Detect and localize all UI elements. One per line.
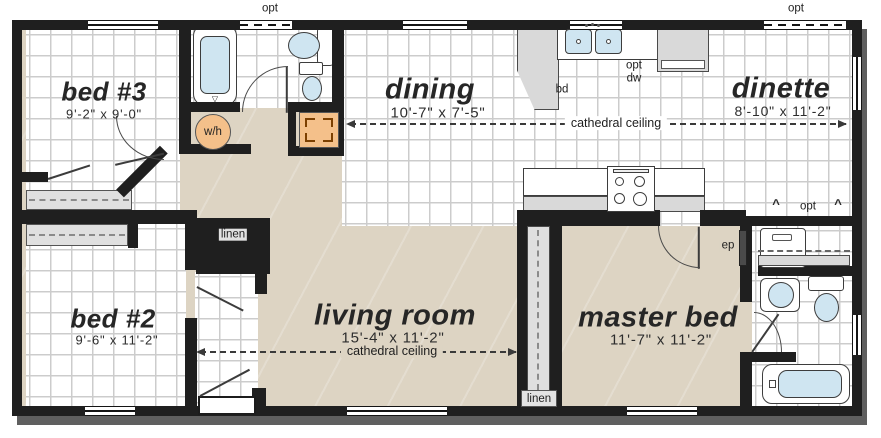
bathtub-main-basin xyxy=(200,36,230,94)
room-name-dinette: dinette xyxy=(732,73,831,106)
arrow-left-top xyxy=(346,120,355,128)
closet-bed2 xyxy=(26,224,128,246)
wall-bed3-left-stub xyxy=(22,172,48,182)
entry-porch xyxy=(198,396,256,415)
floor-plan: opt opt xyxy=(0,0,881,438)
bathtub-master-faucet xyxy=(769,380,776,388)
linen-closet-tall-label: linen xyxy=(521,390,557,407)
room-name-bed3: bed #3 xyxy=(61,77,146,108)
opt-cabinet-caret-right: ^ xyxy=(834,197,842,212)
room-dims-master: 11'-7" x 11'-2" xyxy=(610,332,712,349)
window-optional-dinette xyxy=(764,20,846,30)
washer-counter-dash xyxy=(758,250,850,252)
water-heater: w/h xyxy=(195,114,231,150)
toilet-master-tank xyxy=(808,276,844,291)
washer-detail xyxy=(772,234,792,241)
toilet-main-bowl xyxy=(302,76,322,101)
wall-bed2-foyer-lower xyxy=(185,318,197,406)
furnace-mark-tl xyxy=(305,118,315,127)
linen-closet-frame xyxy=(196,218,270,274)
opt-cabinet-label: opt xyxy=(800,201,816,214)
wall-tub-stub xyxy=(752,352,796,362)
wall-living-linen-left xyxy=(517,226,527,406)
wall-master-bath-lower xyxy=(740,352,752,406)
linen-closet-tall-rod xyxy=(537,230,539,390)
faucet-dot-2 xyxy=(591,23,594,26)
range-burner-4 xyxy=(633,192,647,206)
range-burner-3 xyxy=(614,193,625,204)
wall-linen-master xyxy=(550,226,562,406)
wall-dinette-utility xyxy=(745,216,862,226)
plan-body: linen linen ▽ w/h xyxy=(12,20,862,416)
furnace-mark-bl xyxy=(305,133,315,142)
wall-kitchen-front xyxy=(517,210,660,226)
room-name-bed2: bed #2 xyxy=(70,304,155,335)
washer-counter xyxy=(758,255,850,266)
electrical-panel xyxy=(739,230,747,266)
wall-bed3-south xyxy=(22,210,196,224)
linen-closet-label: linen xyxy=(219,229,247,242)
window-master-bottom xyxy=(627,406,697,416)
range-burner-1 xyxy=(615,177,624,186)
wall-bed2-closet-stub xyxy=(128,224,138,248)
sink-drain-right xyxy=(606,39,611,44)
toilet-master-bowl xyxy=(814,293,839,322)
floor-foyer xyxy=(195,272,258,406)
window-bed3 xyxy=(88,20,158,30)
wall-exterior-left xyxy=(12,20,22,416)
room-name-master: master bed xyxy=(578,302,738,335)
window-kitchen xyxy=(570,20,622,30)
furnace-mark-br xyxy=(323,133,333,142)
opt-dw-line2: dw xyxy=(627,72,642,84)
opt-cabinet-caret-left: ^ xyxy=(772,197,780,212)
sink-main-bath xyxy=(288,32,320,59)
room-dims-bed2: 9'-6" x 11'-2" xyxy=(76,333,159,348)
window-optional-bath xyxy=(240,20,292,30)
opt-dw-line1: opt xyxy=(626,59,642,71)
faucet-dot-1 xyxy=(585,24,588,27)
opt-dw-label: opt dw xyxy=(626,59,642,84)
bd-label: bd xyxy=(556,84,569,97)
window-living-bottom xyxy=(347,406,447,416)
arrow-right-living xyxy=(508,348,517,356)
bathtub-drain: ▽ xyxy=(212,96,218,105)
room-name-living: living room xyxy=(314,300,476,333)
cathedral-ceiling-label-top: cathedral ceiling xyxy=(565,117,667,131)
cathedral-ceiling-label-living: cathedral ceiling xyxy=(341,345,443,359)
room-name-dining: dining xyxy=(385,74,475,107)
range-handle xyxy=(613,169,649,173)
door-arc-master xyxy=(658,226,700,268)
wall-bed3-bath xyxy=(179,28,191,152)
room-dims-dinette: 8'-10" x 11'-2" xyxy=(734,103,831,119)
furnace-mark-tr xyxy=(323,118,333,127)
toilet-main-tank xyxy=(299,62,323,75)
room-dims-dining: 10'-7" x 7'-5" xyxy=(390,105,485,122)
ep-label: ep xyxy=(720,240,737,253)
sink-master-bath xyxy=(768,282,794,308)
window-master-bath-right xyxy=(852,315,862,355)
water-heater-label: w/h xyxy=(204,126,222,138)
window-bed2-bottom xyxy=(85,406,135,416)
range-burner-2 xyxy=(634,176,645,187)
arrow-right-top xyxy=(838,120,847,128)
opt-window-label-top-left: opt xyxy=(262,3,278,16)
room-dims-bed3: 9'-2" x 9'-0" xyxy=(66,107,142,122)
refrigerator-front xyxy=(661,60,705,69)
sink-drain-left xyxy=(576,39,581,44)
window-dining xyxy=(403,20,467,30)
faucet-dot-3 xyxy=(597,24,600,27)
wall-master-north xyxy=(700,210,746,226)
opt-window-label-top-right: opt xyxy=(788,3,804,16)
arrow-left-living xyxy=(196,348,205,356)
bathtub-master-basin xyxy=(778,370,842,398)
closet-bed3 xyxy=(26,190,132,210)
window-dinette-right xyxy=(852,57,862,110)
